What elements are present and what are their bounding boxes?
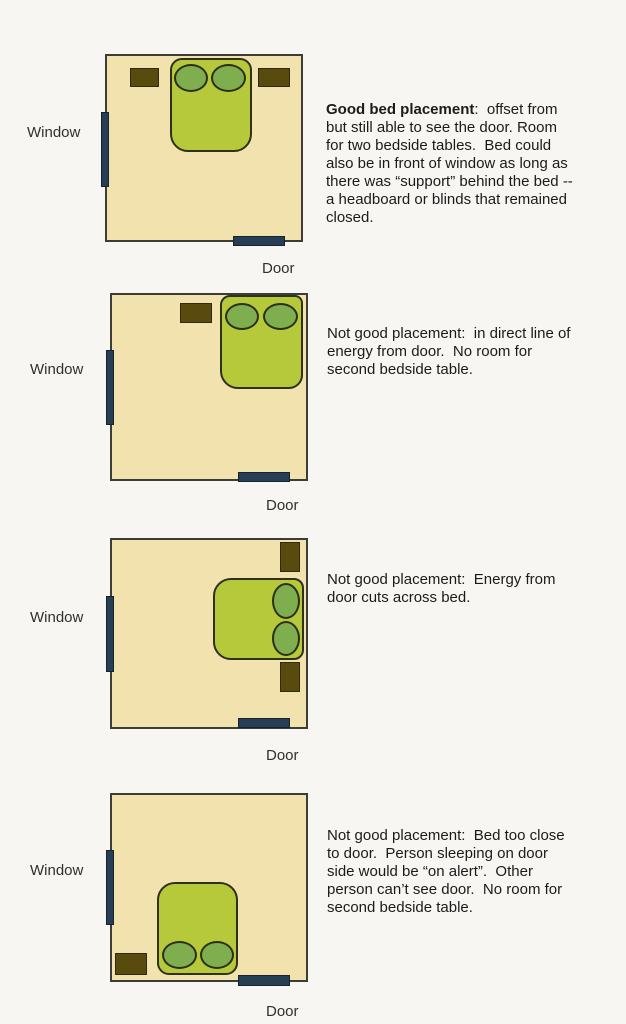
- diagram-bed-too-close-to-door: Window Door Not good placement: Bed too …: [0, 785, 626, 1024]
- bed: [170, 58, 252, 152]
- door-label: Door: [266, 497, 299, 514]
- caption: Good bed placement: offset frombut still…: [326, 101, 624, 227]
- nightstand: [130, 68, 159, 87]
- window-label: Window: [30, 862, 83, 879]
- nightstand: [280, 542, 300, 572]
- pillow: [162, 941, 197, 969]
- diagram-direct-line-of-energy: Window Door Not good placement: in direc…: [0, 285, 626, 530]
- window-marker: [106, 350, 114, 425]
- bed-placement-infographic: Window Door Good bed placement: offset f…: [0, 0, 626, 1024]
- caption: Not good placement: Energy fromdoor cuts…: [327, 571, 625, 607]
- door-marker: [238, 975, 290, 986]
- pillow: [225, 303, 259, 330]
- diagram-good-placement: Window Door Good bed placement: offset f…: [0, 40, 626, 285]
- door-marker: [238, 472, 290, 482]
- door-marker: [238, 718, 290, 728]
- pillow: [272, 583, 300, 619]
- caption: Not good placement: in direct line ofene…: [327, 325, 625, 379]
- bed: [220, 295, 303, 389]
- caption: Not good placement: Bed too closeto door…: [327, 827, 625, 917]
- door-label: Door: [266, 747, 299, 764]
- door-label: Door: [266, 1003, 299, 1020]
- window-label: Window: [27, 124, 80, 141]
- window-marker: [106, 850, 114, 925]
- nightstand: [115, 953, 147, 975]
- pillow: [200, 941, 234, 969]
- pillow: [263, 303, 298, 330]
- nightstand: [258, 68, 290, 87]
- window-marker: [106, 596, 114, 672]
- pillow: [211, 64, 246, 92]
- bed: [157, 882, 238, 975]
- diagram-energy-cuts-across-bed: Window Door Not good placement: Energy f…: [0, 530, 626, 785]
- nightstand: [280, 662, 300, 692]
- bed: [213, 578, 304, 660]
- door-label: Door: [262, 260, 295, 277]
- window-label: Window: [30, 361, 83, 378]
- window-label: Window: [30, 609, 83, 626]
- pillow: [272, 621, 300, 656]
- nightstand: [180, 303, 212, 323]
- window-marker: [101, 112, 109, 187]
- door-marker: [233, 236, 285, 246]
- pillow: [174, 64, 208, 92]
